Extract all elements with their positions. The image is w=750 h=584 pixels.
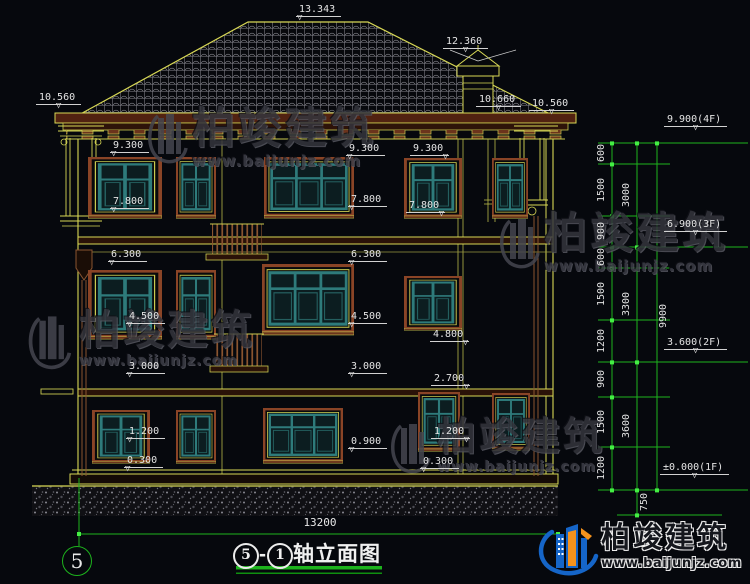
bottom-dimension: 13200 xyxy=(280,516,360,529)
level-marker: 9.300▽ xyxy=(410,143,449,156)
level-marker: 3.000▽ xyxy=(126,361,165,374)
title-axis-circle-1: 1 xyxy=(267,543,293,569)
level-marker-eave-right-outer: 10.560▽ xyxy=(529,98,574,111)
level-marker: 4.800▽ xyxy=(430,329,469,342)
level-marker-chimney: 12.360▽ xyxy=(443,36,488,49)
dim-segment: 1500 xyxy=(596,271,608,317)
watermark: 柏竣建筑 www.baijunjz.com xyxy=(146,108,330,169)
dim-segment: 900 xyxy=(596,356,608,402)
dim-total: 9900 xyxy=(658,293,670,339)
floor-level-marker-3f: 6.900(3F)▽ xyxy=(664,219,727,232)
level-marker: 0.300▽ xyxy=(420,456,459,469)
company-logo-site: www.baijunjz.com xyxy=(601,557,742,570)
dim-segment-major: 3300 xyxy=(621,281,633,327)
level-marker: 6.300▽ xyxy=(108,249,147,262)
dim-segment-major: 3600 xyxy=(621,403,633,449)
watermark-logo-icon xyxy=(25,310,73,372)
level-marker: 6.300▽ xyxy=(348,249,387,262)
watermark: 柏竣建筑 www.baijunjz.com xyxy=(498,213,682,274)
level-marker: 1.200▽ xyxy=(126,426,165,439)
floor-level-marker-2f: 3.600(2F)▽ xyxy=(664,337,727,350)
axis-bubble-5: 5 xyxy=(62,546,92,576)
chain-ticks xyxy=(610,141,659,517)
level-marker: 7.800▽ xyxy=(110,196,149,209)
watermark: 柏竣建筑 www.baijunjz.com xyxy=(25,310,201,372)
floor-level-marker-4f: 9.900(4F)▽ xyxy=(664,114,727,127)
building-elevation-graphic xyxy=(0,0,750,584)
level-marker: 9.300▽ xyxy=(110,140,149,153)
dim-below-ground: 750 xyxy=(639,479,651,525)
level-marker: 0.900▽ xyxy=(348,436,387,449)
level-marker: 3.000▽ xyxy=(348,361,387,374)
level-marker: 9.300▽ xyxy=(346,143,385,156)
title-text: 轴立面图 xyxy=(293,543,381,566)
level-marker: 1.200▽ xyxy=(431,426,470,439)
dim-segment: 1500 xyxy=(596,167,608,213)
dim-segment: 1500 xyxy=(596,399,608,445)
floor-level-marker-1f: ±0.000(1F)▽ xyxy=(660,462,729,475)
level-marker-eave-left: 10.560▽ xyxy=(36,92,81,105)
watermark: 柏竣建筑 www.baijunjz.com xyxy=(388,418,557,476)
level-marker: 2.700▽ xyxy=(431,373,470,386)
company-logo-mark xyxy=(541,524,596,573)
watermark-logo-icon xyxy=(498,213,540,271)
level-marker-eave-right: 10.660▽ xyxy=(476,94,521,107)
drawing-title: 5-1轴立面图 xyxy=(233,538,381,569)
level-marker-ridge: 13.343▽ xyxy=(296,4,341,17)
level-marker: 4.500▽ xyxy=(126,311,165,324)
dim-segment-major: 3000 xyxy=(621,172,633,218)
cad-elevation-drawing: 柏竣建筑 www.baijunjz.com 柏竣建筑 www.baijunjz.… xyxy=(0,0,750,584)
level-marker: 7.800▽ xyxy=(406,200,445,213)
level-marker: 0.300▽ xyxy=(124,455,163,468)
level-marker: 4.500▽ xyxy=(348,311,387,324)
dim-segment: 1200 xyxy=(596,445,608,491)
watermark-logo-icon xyxy=(146,108,188,166)
title-dash: - xyxy=(259,543,267,566)
title-axis-circle-5: 5 xyxy=(233,543,259,569)
company-logo-name: 柏竣建筑 xyxy=(601,524,729,553)
ground-hatch xyxy=(32,486,558,516)
level-marker: 7.800▽ xyxy=(348,194,387,207)
